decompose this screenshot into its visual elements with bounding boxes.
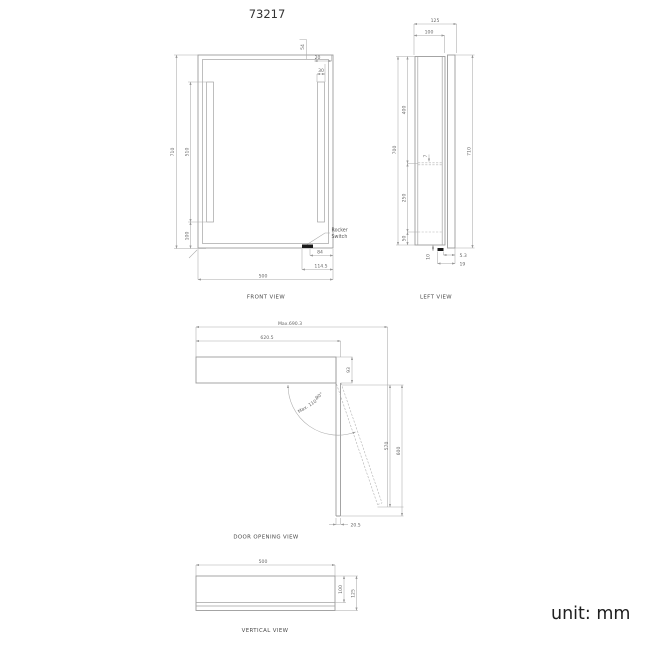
vertical-dim-100: 100 xyxy=(338,585,344,594)
front-dim-54: 54 xyxy=(300,44,306,50)
door-dim-max-690_3: Max.690.3 xyxy=(278,321,302,327)
left-dim-19: 19 xyxy=(460,262,466,268)
door-dim-20_5: 20.5 xyxy=(351,523,361,529)
left-dim-10: 10 xyxy=(426,254,432,260)
rocker-switch-label-2: Switch xyxy=(332,234,348,240)
front-dim-30: 30 xyxy=(318,68,324,74)
front-view-label: FRONT VIEW xyxy=(247,295,285,301)
drawing-canvas: 73217 Rocker Switch 710 510 100 54 20 30… xyxy=(0,0,650,650)
left-dim-400: 400 xyxy=(402,106,408,115)
left-dim-50: 50 xyxy=(402,236,408,242)
left-dim-700: 700 xyxy=(392,146,398,155)
left-dim-5_3: 5.3 xyxy=(460,253,467,259)
unit-label: unit: mm xyxy=(551,604,630,624)
door-dim-600: 600 xyxy=(396,447,402,456)
front-rocker-switch xyxy=(302,245,313,249)
left-dim-710: 710 xyxy=(467,147,473,156)
door-dim-93: 93 xyxy=(346,367,352,373)
page-background xyxy=(0,0,650,650)
vertical-view-label: VERTICAL VIEW xyxy=(242,628,289,634)
door-dim-620_5: 620.5 xyxy=(260,335,273,341)
front-dim-710: 710 xyxy=(170,148,176,157)
left-dim-100: 100 xyxy=(425,30,434,36)
front-dim-510: 510 xyxy=(185,148,191,157)
front-dim-114_5: 114.5 xyxy=(314,264,327,270)
front-dim-100: 100 xyxy=(185,232,191,241)
rocker-switch-label-1: Rocker xyxy=(332,228,348,234)
drawing-title: 73217 xyxy=(249,7,286,21)
door-opening-view-label: DOOR OPENING VIEW xyxy=(233,535,299,541)
left-dim-7: 7 xyxy=(423,154,429,157)
technical-drawing-page: 73217 Rocker Switch 710 510 100 54 20 30… xyxy=(0,0,650,650)
left-dim-250: 250 xyxy=(402,194,408,203)
vertical-dim-500: 500 xyxy=(259,559,268,565)
left-dim-125: 125 xyxy=(431,18,440,24)
vertical-dim-125: 125 xyxy=(351,589,357,598)
left-rocker-switch xyxy=(438,248,444,251)
front-dim-84: 84 xyxy=(317,250,323,256)
left-view-label: LEFT VIEW xyxy=(420,295,452,301)
door-dim-570: 570 xyxy=(384,442,390,451)
front-dim-500: 500 xyxy=(259,274,268,280)
front-dim-20: 20 xyxy=(315,55,321,61)
